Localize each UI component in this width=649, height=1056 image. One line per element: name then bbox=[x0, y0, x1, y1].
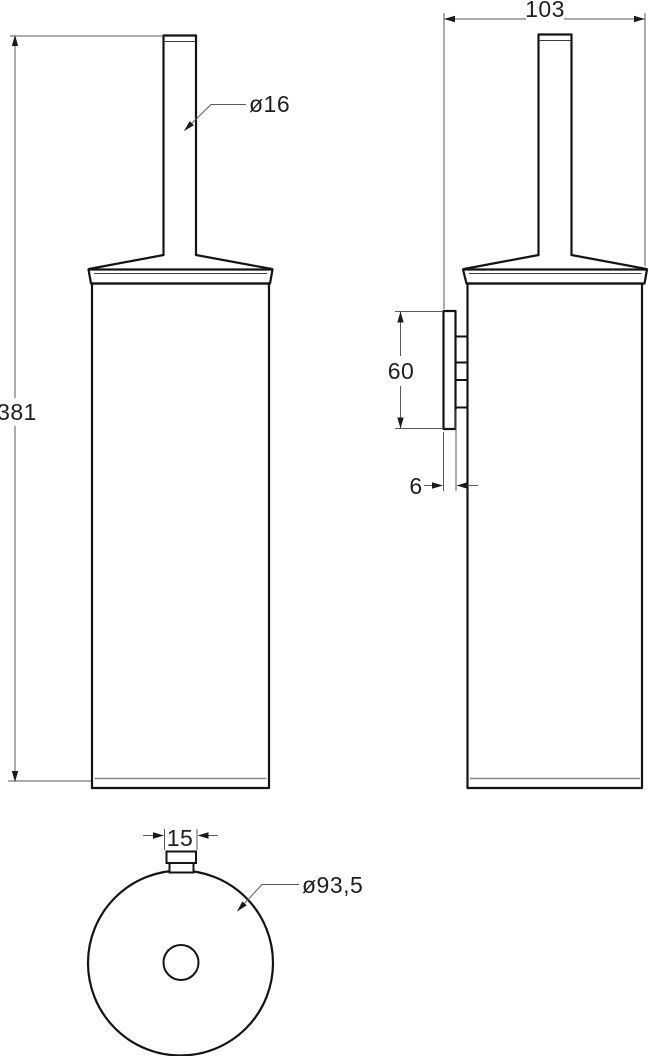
side-handle-flare-left bbox=[464, 255, 539, 269]
front-handle-diameter-label: ø16 bbox=[249, 91, 290, 117]
side-depth-arrow-right-icon bbox=[634, 16, 645, 22]
wall-mount-tab-strip bbox=[456, 337, 468, 408]
toilet-brush-holder-drawing: 381 ø16 103 bbox=[0, 0, 649, 1056]
side-handle-flare-right bbox=[572, 255, 647, 269]
bottom-body-circle bbox=[88, 871, 273, 1056]
knob-width-dimension-label: 15 bbox=[167, 825, 194, 851]
side-handle-rod-outline bbox=[539, 35, 572, 256]
technical-drawing-canvas: 381 ø16 103 bbox=[0, 0, 649, 1056]
front-height-arrow-up-icon bbox=[12, 35, 18, 46]
mount-height-arrow-down-icon bbox=[397, 418, 403, 429]
bottom-diameter-label: ø93,5 bbox=[302, 872, 363, 898]
bottom-knob-upper bbox=[167, 852, 197, 864]
plate-thickness-arrow-right-icon bbox=[432, 482, 443, 488]
front-height-arrow-down-icon bbox=[12, 771, 18, 782]
side-view: 103 60 6 bbox=[388, 0, 647, 788]
side-body-outline bbox=[468, 284, 643, 789]
front-handle-flare-left bbox=[89, 255, 164, 269]
front-view: 381 ø16 bbox=[0, 35, 290, 788]
bottom-knob-lower bbox=[170, 863, 194, 873]
mount-height-arrow-up-icon bbox=[397, 312, 403, 323]
knob-width-arrow-right-icon bbox=[153, 832, 164, 838]
plate-thickness-arrow-left-icon bbox=[457, 482, 468, 488]
bottom-view: 15 ø93,5 bbox=[88, 825, 363, 1056]
plate-thickness-dimension-label: 6 bbox=[409, 473, 422, 499]
front-handle-rod-outline bbox=[164, 36, 197, 256]
side-depth-dimension-label: 103 bbox=[525, 0, 565, 22]
front-height-dimension-label: 381 bbox=[0, 399, 37, 425]
side-depth-arrow-left-icon bbox=[444, 16, 455, 22]
front-handle-flare-right bbox=[196, 255, 272, 269]
front-body-outline bbox=[92, 284, 269, 789]
front-lid-outline bbox=[89, 270, 273, 284]
bottom-center-hole-circle bbox=[164, 945, 199, 980]
front-handle-diameter-leader bbox=[185, 105, 247, 131]
mount-height-dimension-label: 60 bbox=[388, 358, 415, 384]
knob-width-arrow-left-icon bbox=[198, 832, 209, 838]
wall-mount-plate bbox=[444, 311, 456, 429]
side-lid-outline bbox=[463, 270, 647, 284]
